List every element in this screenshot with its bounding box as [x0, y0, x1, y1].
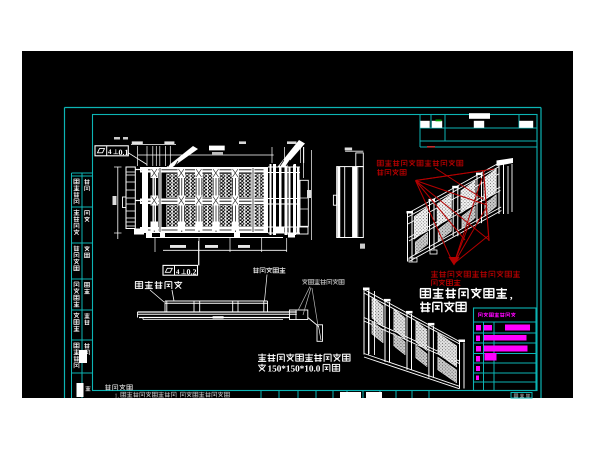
svg-text:1.: 1. — [115, 393, 120, 399]
svg-text:150*150*10.0: 150*150*10.0 — [268, 363, 321, 373]
svg-text:4: 4 — [176, 268, 180, 276]
svg-text:,: , — [510, 290, 513, 302]
svg-text:0.1: 0.1 — [119, 148, 129, 157]
svg-text:0.2: 0.2 — [187, 267, 197, 276]
svg-text:4: 4 — [108, 148, 112, 156]
